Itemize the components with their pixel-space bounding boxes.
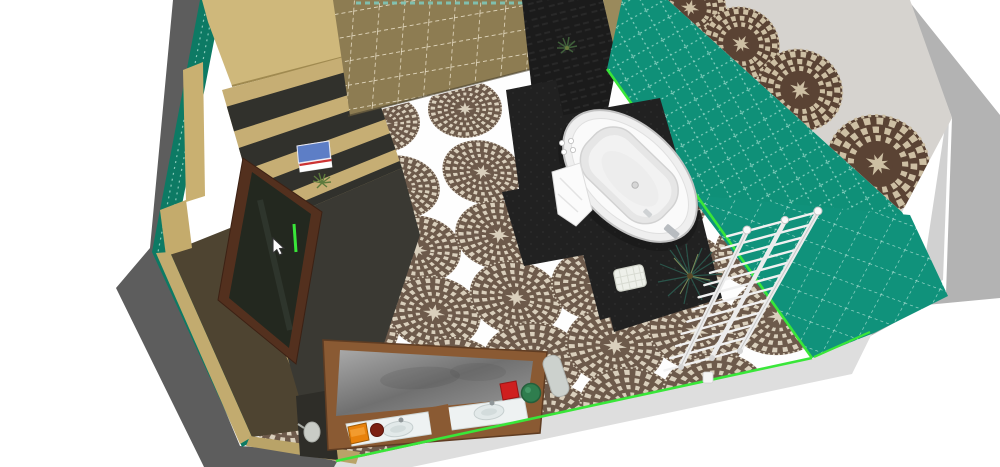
radiator-cap (781, 216, 788, 223)
kettle-body (304, 422, 320, 442)
faucet-handle (559, 140, 564, 145)
sink-left-faucet (399, 418, 404, 423)
faucet-handle (568, 138, 573, 143)
radiator-foot (737, 348, 743, 354)
mirror-blur (450, 363, 506, 381)
vanity-with-mirror[interactable] (323, 340, 547, 450)
design-viewport (0, 0, 1000, 467)
small-white-object[interactable] (703, 372, 713, 383)
radiator-cap (814, 207, 822, 215)
plant-center (565, 46, 569, 50)
red-box[interactable] (500, 381, 519, 400)
room-3d-scene (0, 0, 1000, 467)
radiator-foot (709, 355, 715, 361)
selection-outline-corner (294, 224, 296, 252)
green-pot[interactable] (522, 384, 541, 403)
radiator-foot (678, 364, 684, 370)
leaning-beam[interactable] (183, 62, 205, 202)
faucet-handle (561, 149, 566, 154)
grass-root (687, 273, 693, 279)
soap-knob[interactable] (371, 424, 384, 437)
green-pot-highlight (525, 387, 531, 393)
faucet-handle (570, 147, 575, 152)
radiator-cap (743, 226, 751, 234)
sink-right-faucet (490, 401, 495, 406)
counter-divider (428, 404, 452, 436)
blue-box[interactable] (297, 141, 332, 172)
